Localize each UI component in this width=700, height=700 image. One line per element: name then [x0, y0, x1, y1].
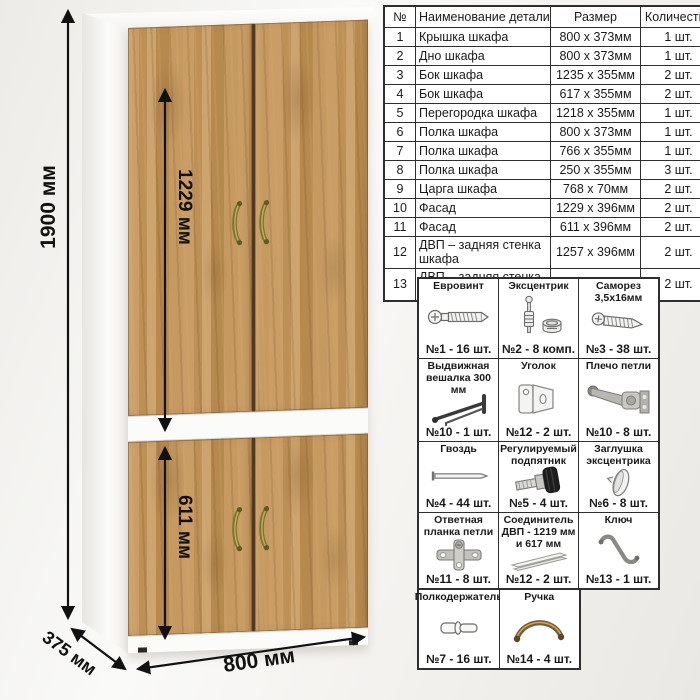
- table-header-row: № Наименование детали Размер Количество: [384, 6, 700, 28]
- table-cell: Полка шкафа: [416, 123, 551, 142]
- hardware-item: Гвоздь №4 - 44 шт.: [419, 442, 498, 512]
- table-cell: 2: [384, 47, 416, 66]
- hardware-title: Соединитель ДВП - 1219 мм и 617 мм: [500, 515, 577, 550]
- table-cell: ДВП – задняя стенка шкафа: [416, 237, 551, 269]
- hardware-item: Заглушка эксцентрика №6 - 8 шт.: [579, 442, 658, 512]
- table-cell: 12: [384, 237, 416, 269]
- hardware-item: Уголок №12 - 2 шт.: [499, 359, 578, 441]
- hardware-item: Ответная планка петли №11 - 8 шт.: [419, 513, 498, 588]
- table-cell: Фасад: [416, 199, 551, 218]
- table-row: 2Дно шкафа800 x 373мм1 шт.: [384, 47, 700, 66]
- cam-lock-icon: [509, 293, 569, 342]
- table-cell: 1: [384, 28, 416, 47]
- header-num: №: [384, 6, 416, 28]
- parts-table: № Наименование детали Размер Количество …: [383, 5, 700, 302]
- hardware-item: Выдвижная вешалка 300 мм №10 - 1 шт.: [419, 359, 498, 441]
- table-cell: 1257 x 396мм: [551, 237, 641, 269]
- table-row: 8Полка шкафа250 x 355мм3 шт.: [384, 161, 700, 180]
- table-row: 11Фасад611 x 396мм2 шт.: [384, 218, 700, 237]
- table-cell: 1218 x 355мм: [551, 104, 641, 123]
- table-cell: Фасад: [416, 218, 551, 237]
- door-handle-icon: [259, 199, 273, 245]
- hardware-count: №10 - 8 шт.: [586, 425, 652, 439]
- wardrobe-side-panel: [82, 13, 128, 654]
- hdf-connector-icon: [506, 550, 572, 572]
- hardware-title: Ручка: [524, 592, 554, 604]
- hardware-item: Саморез 3,5x16мм №3 - 38 шт.: [579, 279, 658, 358]
- table-cell: 7: [384, 142, 416, 161]
- table-cell: Бок шкафа: [416, 85, 551, 104]
- cam-cap-icon: [599, 468, 639, 497]
- door-handle-icon: [507, 604, 571, 652]
- euro-screw-icon: [426, 293, 492, 342]
- door-handle-icon: [259, 505, 273, 551]
- table-cell: 1 шт.: [641, 28, 700, 47]
- hardware-count: №2 - 8 комп.: [502, 342, 575, 356]
- hinge-plate-icon: [429, 539, 489, 573]
- hardware-title: Эксцентрик: [508, 281, 568, 293]
- cabinet-foot: [349, 640, 358, 645]
- table-cell: 8: [384, 161, 416, 180]
- pull-out-hanger-icon: [424, 396, 494, 425]
- hardware-count: №14 - 4 шт.: [506, 652, 572, 666]
- table-cell: 2 шт.: [641, 66, 700, 85]
- table-cell: 800 x 373мм: [551, 123, 641, 142]
- nail-icon: [427, 456, 491, 496]
- hardware-grid: Евровинт №1 - 16 шт. Эксцентрик: [417, 277, 660, 590]
- hardware-count: №10 - 1 шт.: [426, 425, 492, 439]
- table-cell: 800 x 373мм: [551, 47, 641, 66]
- table-cell: 2 шт.: [641, 199, 700, 218]
- hex-key-icon: [593, 527, 645, 572]
- hardware-item: Ручка №14 - 4 шт.: [500, 590, 580, 668]
- hardware-item: Ключ №13 - 1 шт.: [579, 513, 658, 588]
- hardware-title: Выдвижная вешалка 300 мм: [420, 361, 497, 396]
- upper-doors: [128, 20, 368, 416]
- hardware-count: №7 - 16 шт.: [426, 652, 492, 666]
- table-cell: 766 x 355мм: [551, 142, 641, 161]
- self-tapping-screw-icon: [588, 305, 650, 343]
- table-row: 1Крышка шкафа800 x 373мм1 шт.: [384, 28, 700, 47]
- table-cell: 11: [384, 218, 416, 237]
- header-name: Наименование детали: [416, 6, 551, 28]
- table-cell: 4: [384, 85, 416, 104]
- table-cell: 1 шт.: [641, 104, 700, 123]
- table-row: 7Полка шкафа766 x 355мм1 шт.: [384, 142, 700, 161]
- table-cell: 800 x 373мм: [551, 28, 641, 47]
- table-cell: Полка шкафа: [416, 142, 551, 161]
- hardware-count: №3 - 38 шт.: [586, 342, 652, 356]
- door-handle-icon: [232, 506, 246, 552]
- table-cell: 611 x 396мм: [551, 218, 641, 237]
- table-cell: Царга шкафа: [416, 180, 551, 199]
- hardware-count: №5 - 4 шт.: [509, 496, 568, 510]
- table-cell: 1 шт.: [641, 123, 700, 142]
- hardware-item: Соединитель ДВП - 1219 мм и 617 мм №12 -…: [499, 513, 578, 588]
- depth-dimension-label: 375 мм: [39, 627, 101, 679]
- hardware-title: Ключ: [605, 515, 633, 527]
- header-size: Размер: [551, 6, 641, 28]
- hardware-count: №1 - 16 шт.: [426, 342, 492, 356]
- hardware-title: Полкодержатель: [415, 592, 503, 604]
- hardware-title: Евровинт: [433, 281, 484, 293]
- table-cell: 3: [384, 66, 416, 85]
- table-row: 10Фасад1229 x 396мм2 шт.: [384, 199, 700, 218]
- hardware-title: Гвоздь: [440, 444, 477, 456]
- adjustable-foot-icon: [510, 468, 568, 497]
- header-qty: Количество: [641, 6, 700, 28]
- table-cell: 250 x 355мм: [551, 161, 641, 180]
- hardware-item: Регулируемый подпятник №5 - 4 шт.: [499, 442, 578, 512]
- hardware-count: №12 - 2 шт.: [506, 572, 572, 586]
- hardware-count: №11 - 8 шт.: [426, 572, 491, 586]
- table-cell: Перегородка шкафа: [416, 104, 551, 123]
- wardrobe-front: [128, 20, 368, 653]
- table-row: 6Полка шкафа800 x 373мм1 шт.: [384, 123, 700, 142]
- table-cell: Полка шкафа: [416, 161, 551, 180]
- hardware-title: Плечо петли: [586, 361, 651, 373]
- table-cell: 5: [384, 104, 416, 123]
- corner-bracket-icon: [511, 373, 567, 425]
- table-cell: Дно шкафа: [416, 47, 551, 66]
- table-cell: 1 шт.: [641, 142, 700, 161]
- table-row: 4Бок шкафа617 x 355мм2 шт.: [384, 85, 700, 104]
- table-cell: Крышка шкафа: [416, 28, 551, 47]
- table-cell: 2 шт.: [641, 237, 700, 269]
- lower-doors: [128, 434, 368, 636]
- table-cell: Бок шкафа: [416, 66, 551, 85]
- hardware-count: №13 - 1 шт.: [586, 572, 652, 586]
- cabinet-foot: [138, 647, 147, 652]
- hardware-count: №12 - 2 шт.: [506, 425, 572, 439]
- hardware-title: Саморез 3,5x16мм: [580, 281, 657, 305]
- table-cell: 13: [384, 268, 416, 300]
- table-cell: 2 шт.: [641, 85, 700, 104]
- table-row: 3Бок шкафа1235 x 355мм2 шт.: [384, 66, 700, 85]
- assembly-sheet: 1900 мм 1229 мм 611 мм 800 мм 375 мм № Н…: [0, 0, 700, 700]
- hardware-item: Плечо петли №10 - 8 шт.: [579, 359, 658, 441]
- table-cell: 6: [384, 123, 416, 142]
- table-cell: 768 x 70мм: [551, 180, 641, 199]
- hardware-grid-bottom: Полкодержатель №7 - 16 шт. Ручка: [417, 588, 581, 670]
- table-cell: 1235 x 355мм: [551, 66, 641, 85]
- hardware-title: Ответная планка петли: [420, 515, 497, 539]
- hardware-title: Уголок: [521, 361, 556, 373]
- table-row: 9Царга шкафа768 x 70мм2 шт.: [384, 180, 700, 199]
- table-cell: 1 шт.: [641, 47, 700, 66]
- table-cell: 1229 x 396мм: [551, 199, 641, 218]
- door-handle-icon: [232, 200, 246, 246]
- shelf-pin-icon: [433, 604, 485, 652]
- table-cell: 3 шт.: [641, 161, 700, 180]
- height-dimension-label: 1900 мм: [37, 165, 60, 249]
- table-row: 12ДВП – задняя стенка шкафа1257 x 396мм2…: [384, 237, 700, 269]
- hardware-count: №4 - 44 шт.: [426, 496, 492, 510]
- hinge-arm-icon: [584, 373, 654, 425]
- table-cell: 10: [384, 199, 416, 218]
- table-cell: 9: [384, 180, 416, 199]
- table-cell: 2 шт.: [641, 218, 700, 237]
- table-cell: 617 x 355мм: [551, 85, 641, 104]
- hardware-item: Эксцентрик: [499, 279, 578, 358]
- table-row: 5Перегородка шкафа1218 x 355мм1 шт.: [384, 104, 700, 123]
- table-cell: 2 шт.: [641, 180, 700, 199]
- hardware-count: №6 - 8 шт.: [589, 496, 648, 510]
- hardware-item: Евровинт №1 - 16 шт.: [419, 279, 498, 358]
- hardware-item: Полкодержатель №7 - 16 шт.: [419, 590, 499, 668]
